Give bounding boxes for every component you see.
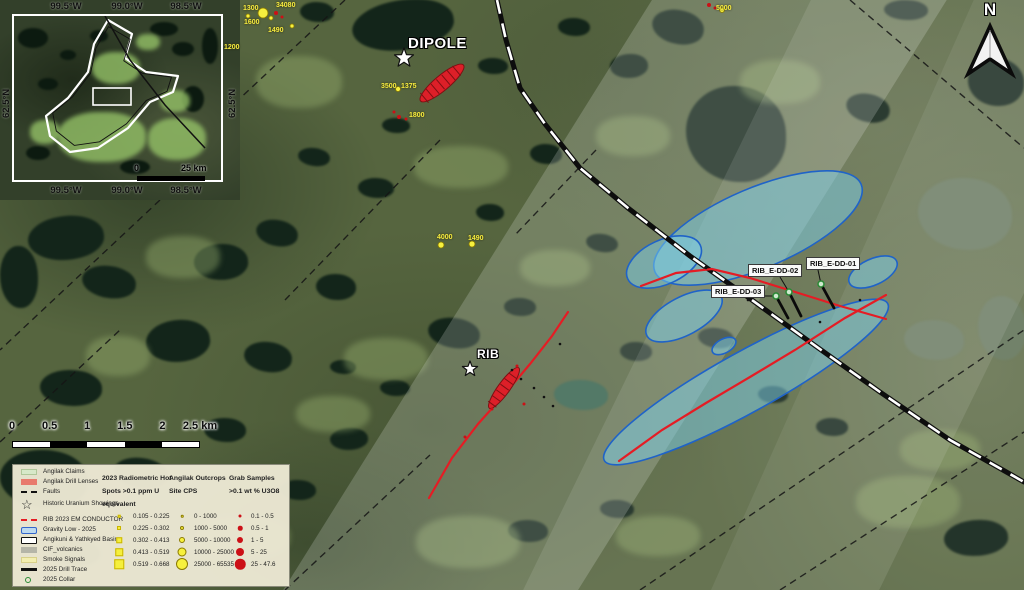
inset-frame <box>12 14 223 182</box>
station-dot <box>705 267 708 270</box>
legend-class-label: 0.1 - 0.5 <box>251 513 274 520</box>
grab-sample-dot <box>491 408 494 411</box>
fault-line <box>780 432 1024 590</box>
grab-sample-dot <box>516 365 519 368</box>
legend-class-symbol <box>235 559 246 570</box>
inset-lon-label: 99.0°W <box>111 185 142 196</box>
legend-column-header: Angilak Outcrops <box>169 475 226 482</box>
legend-class-symbol <box>114 559 124 569</box>
legend-column-header: Site CPS <box>169 488 197 495</box>
legend-item-label: Smoke Signals <box>43 556 85 563</box>
scale-segment <box>162 442 199 447</box>
legend-class-label: 0.105 - 0.225 <box>133 513 169 520</box>
legend-collar-symbol <box>25 577 31 583</box>
outcrop-sample-dot <box>246 14 250 18</box>
drill-lens-polygon <box>416 59 469 106</box>
drill-collar <box>773 293 779 299</box>
legend-class-symbol <box>117 526 121 530</box>
legend-class-symbol <box>176 558 188 570</box>
legend-class-symbol <box>178 548 187 557</box>
legend-class-label: 0.225 - 0.302 <box>133 525 169 532</box>
legend-class-label: 0.413 - 0.519 <box>133 549 169 556</box>
station-dot <box>543 396 546 399</box>
station-dot <box>533 387 536 390</box>
gravity-low-polygon <box>638 280 730 353</box>
outcrop-sample-dot <box>396 87 401 92</box>
legend-class-label: 0.5 - 1 <box>251 525 269 532</box>
grab-sample-dot <box>274 11 278 15</box>
legend-trace-symbol <box>21 568 37 571</box>
station-dot <box>559 343 562 346</box>
station-dot <box>819 321 822 324</box>
scale-segment <box>87 442 124 447</box>
inset-scale-max: 25 km <box>181 163 207 173</box>
outcrop-sample-dot <box>258 8 268 18</box>
drill-collar <box>818 281 824 287</box>
north-label: N <box>955 0 1024 20</box>
grab-sample-dot <box>393 111 396 114</box>
legend-class-symbol <box>118 515 121 518</box>
grab-sample-dot <box>523 403 526 406</box>
inset-lat-label: 62.5°N <box>1 89 12 118</box>
station-dot <box>727 283 730 286</box>
scale-bar: 00.511.522.5 km <box>10 420 230 452</box>
scale-tick-label: 2.5 km <box>183 420 217 432</box>
station-dot <box>552 405 555 408</box>
station-dot <box>520 378 523 381</box>
gravity-low-polygon <box>639 147 876 308</box>
legend-item-label: Faults <box>43 488 60 495</box>
grab-sample-dot <box>464 436 467 439</box>
drill-trace-line <box>789 292 801 316</box>
scale-tick-label: 1 <box>84 420 90 432</box>
gravity-low-polygon <box>844 249 902 295</box>
legend-column-header: Grab Samples <box>229 475 275 482</box>
drill-trace-line <box>776 296 788 318</box>
legend-class-symbol <box>179 537 185 543</box>
legend-class-label: 0.302 - 0.413 <box>133 537 169 544</box>
legend-item-label: RIB 2023 EM CONDUCTOR <box>43 516 123 523</box>
scale-tick-label: 0.5 <box>42 420 57 432</box>
north-arrow: N <box>955 0 1024 82</box>
legend-class-symbol <box>116 537 122 543</box>
grab-sample-dot <box>405 118 408 121</box>
grab-sample-dot <box>714 7 717 10</box>
inset-lon-label: 99.5°W <box>50 1 81 12</box>
inset-scale-zero: 0 <box>134 163 139 173</box>
grab-sample-dot <box>707 3 711 7</box>
legend-volcanics-swatch <box>21 547 37 553</box>
legend-column-header: equivalent <box>102 501 136 508</box>
legend-class-label: 1 - 5 <box>251 537 263 544</box>
outcrop-sample-dot <box>438 242 444 248</box>
legend-star-icon: ☆ <box>21 498 33 511</box>
legend-class-symbol <box>115 548 123 556</box>
legend-class-label: 0 - 1000 <box>194 513 217 520</box>
outcrop-sample-dot <box>720 8 725 13</box>
drill-lens-polygon <box>484 364 523 412</box>
fault-line <box>285 455 430 590</box>
legend-smoke-swatch <box>21 557 37 563</box>
legend-class-symbol <box>237 537 243 543</box>
inset-lon-label: 99.5°W <box>50 185 81 196</box>
outcrop-sample-dot <box>469 241 475 247</box>
scale-segment <box>125 442 162 447</box>
legend-item-label: Gravity Low - 2025 <box>43 526 96 533</box>
target-star-icon <box>395 48 414 66</box>
legend-column-header: >0.1 wt % U3O8 <box>229 488 279 495</box>
legend-class-symbol <box>238 526 243 531</box>
legend-class-symbol <box>180 526 184 530</box>
legend-column-header: 2023 Radiometric Hot <box>102 475 172 482</box>
station-dot <box>511 369 514 372</box>
legend-fault-symbol <box>21 491 37 493</box>
fault-line <box>285 140 440 300</box>
legend-class-label: 25 - 47.6 <box>251 561 275 568</box>
inset-map: 99.5°W 99.0°W 98.5°W 99.5°W 99.0°W 98.5°… <box>0 0 240 200</box>
inset-lat-label: 62.5°N <box>227 89 238 118</box>
scale-segment <box>13 442 50 447</box>
legend-item-label: 2025 Collar <box>43 576 75 583</box>
scale-tick-label: 2 <box>159 420 165 432</box>
scale-bar-segments <box>12 441 200 448</box>
legend-class-symbol <box>236 548 244 556</box>
outcrop-sample-dot <box>290 24 294 28</box>
station-dot <box>859 299 862 302</box>
grab-sample-dot <box>397 115 401 119</box>
legend: Angilak ClaimsAngilak Drill LensesFaults… <box>12 464 290 587</box>
scale-tick-label: 1.5 <box>117 420 132 432</box>
legend-item-label: CIF_volcanics <box>43 546 83 553</box>
fault-line <box>515 150 596 235</box>
legend-item-label: Angikuni & Yathkyed Basins <box>43 536 121 543</box>
fault-line <box>640 330 1024 590</box>
gravity-low-polygon <box>590 277 902 487</box>
legend-class-label: 5000 - 10000 <box>194 537 230 544</box>
legend-lenses-swatch <box>21 479 37 485</box>
inset-scale-bar <box>137 176 205 181</box>
legend-class-label: 25000 - 65535 <box>194 561 234 568</box>
legend-class-label: 0.519 - 0.668 <box>133 561 169 568</box>
inset-lon-label: 98.5°W <box>170 1 201 12</box>
station-dot <box>747 299 750 302</box>
legend-class-label: 1000 - 5000 <box>194 525 227 532</box>
legend-claims-swatch <box>21 469 37 475</box>
legend-item-label: Angilak Drill Lenses <box>43 478 98 485</box>
legend-class-symbol <box>239 515 242 518</box>
drill-trace-line <box>821 284 834 308</box>
scale-segment <box>50 442 87 447</box>
inset-lon-label: 99.0°W <box>111 1 142 12</box>
legend-basins-swatch <box>21 537 37 544</box>
map-canvas: 1300340801600149012005000350013751800400… <box>0 0 1024 590</box>
legend-item-label: Angilak Claims <box>43 468 85 475</box>
drill-collar <box>786 289 792 295</box>
legend-class-label: 10000 - 25000 <box>194 549 234 556</box>
target-star-icon <box>462 361 477 376</box>
legend-class-symbol <box>181 515 184 518</box>
fault-line <box>0 200 160 350</box>
legend-class-label: 5 - 25 <box>251 549 267 556</box>
outcrop-sample-dot <box>269 16 273 20</box>
legend-column-header: Spots >0.1 ppm U <box>102 488 159 495</box>
em-conductor-line <box>429 312 568 498</box>
inset-lon-label: 98.5°W <box>170 185 201 196</box>
grab-sample-dot <box>281 16 284 19</box>
scale-tick-label: 0 <box>9 420 15 432</box>
legend-conductor-symbol <box>21 519 37 521</box>
legend-item-label: 2025 Drill Trace <box>43 566 87 573</box>
legend-gravity-swatch <box>21 527 37 534</box>
